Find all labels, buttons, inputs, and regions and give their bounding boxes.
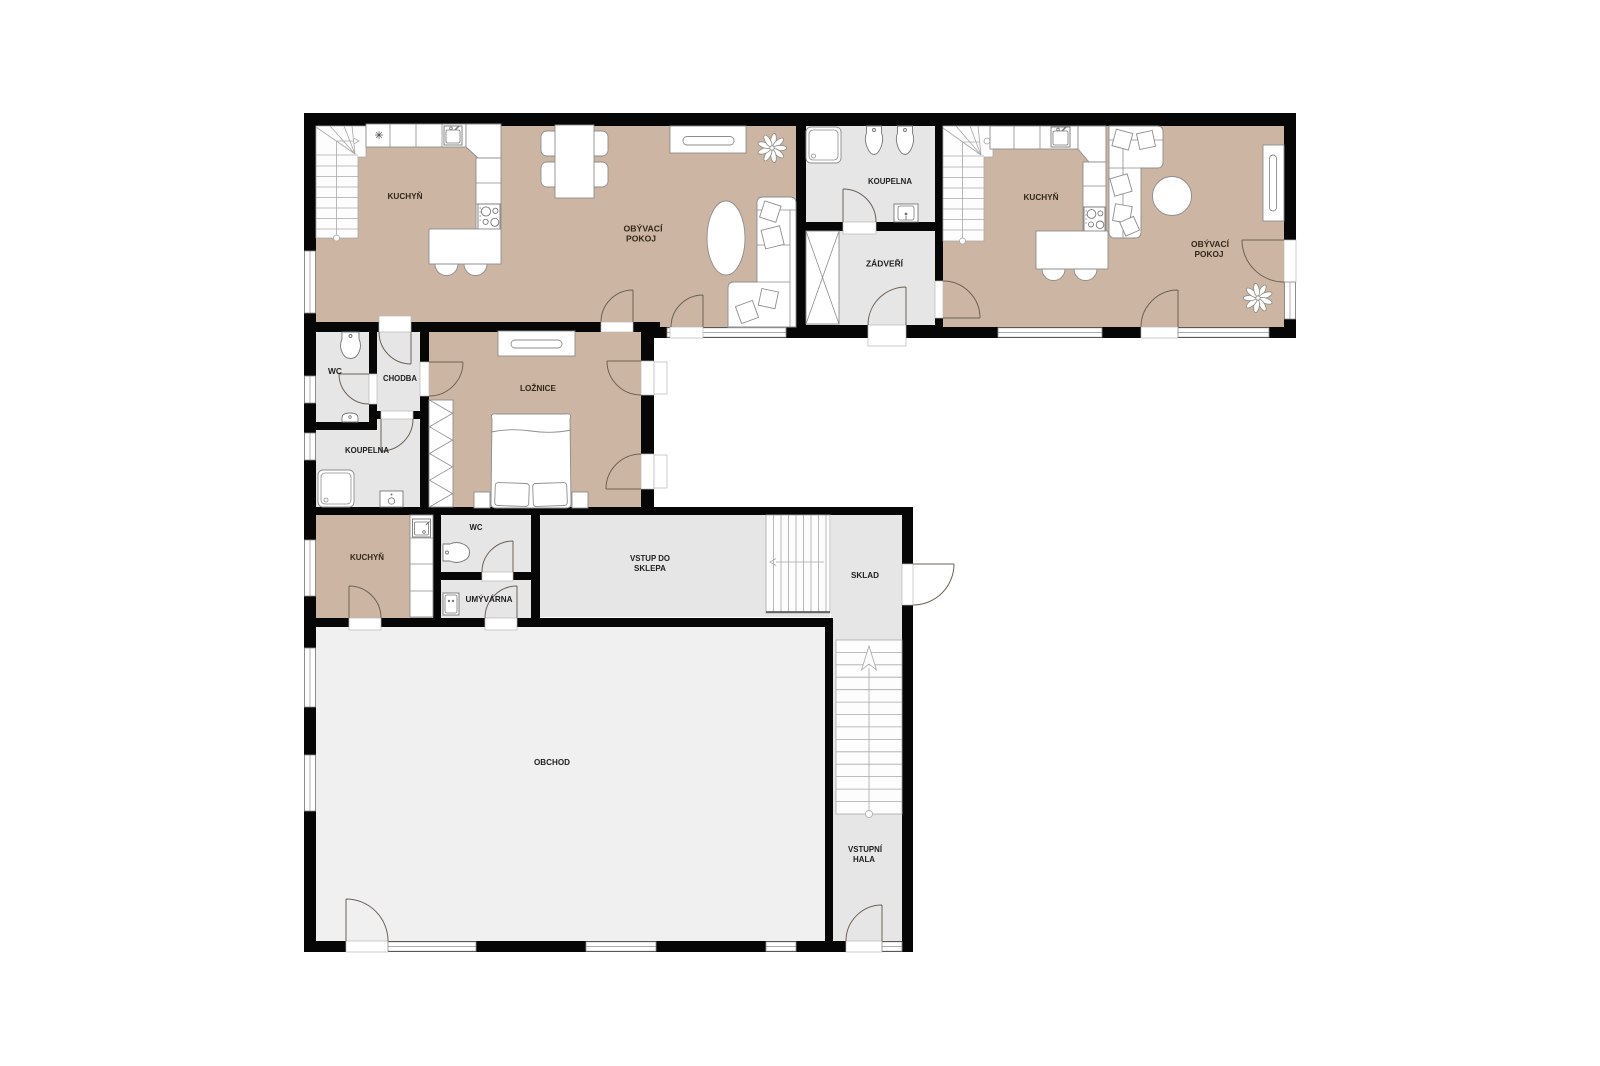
svg-text:OBÝVACÍ: OBÝVACÍ: [624, 223, 664, 234]
svg-text:KOUPELNA: KOUPELNA: [868, 176, 912, 186]
svg-text:POKOJ: POKOJ: [1195, 249, 1224, 259]
svg-text:CHODBA: CHODBA: [383, 373, 417, 383]
svg-text:VSTUPNÍ: VSTUPNÍ: [848, 844, 883, 854]
svg-text:KUCHYŇ: KUCHYŇ: [350, 551, 384, 562]
svg-text:POKOJ: POKOJ: [626, 234, 656, 244]
svg-text:KUCHYŇ: KUCHYŇ: [1024, 191, 1059, 202]
svg-text:KUCHYŇ: KUCHYŇ: [388, 190, 423, 201]
svg-text:LOŽNICE: LOŽNICE: [520, 382, 556, 393]
svg-text:WC: WC: [328, 366, 342, 376]
svg-text:ZÁDVEŘÍ: ZÁDVEŘÍ: [866, 258, 904, 269]
svg-text:SKLEPA: SKLEPA: [634, 563, 666, 573]
svg-text:OBÝVACÍ: OBÝVACÍ: [1191, 238, 1230, 249]
svg-text:SKLAD: SKLAD: [851, 570, 879, 580]
svg-text:WC: WC: [470, 522, 483, 532]
svg-text:KOUPELNA: KOUPELNA: [345, 445, 389, 455]
svg-text:VSTUP DO: VSTUP DO: [630, 553, 670, 563]
svg-text:UMÝVÁRNA: UMÝVÁRNA: [466, 593, 513, 604]
svg-text:HALA: HALA: [853, 854, 875, 864]
svg-text:OBCHOD: OBCHOD: [534, 757, 570, 767]
